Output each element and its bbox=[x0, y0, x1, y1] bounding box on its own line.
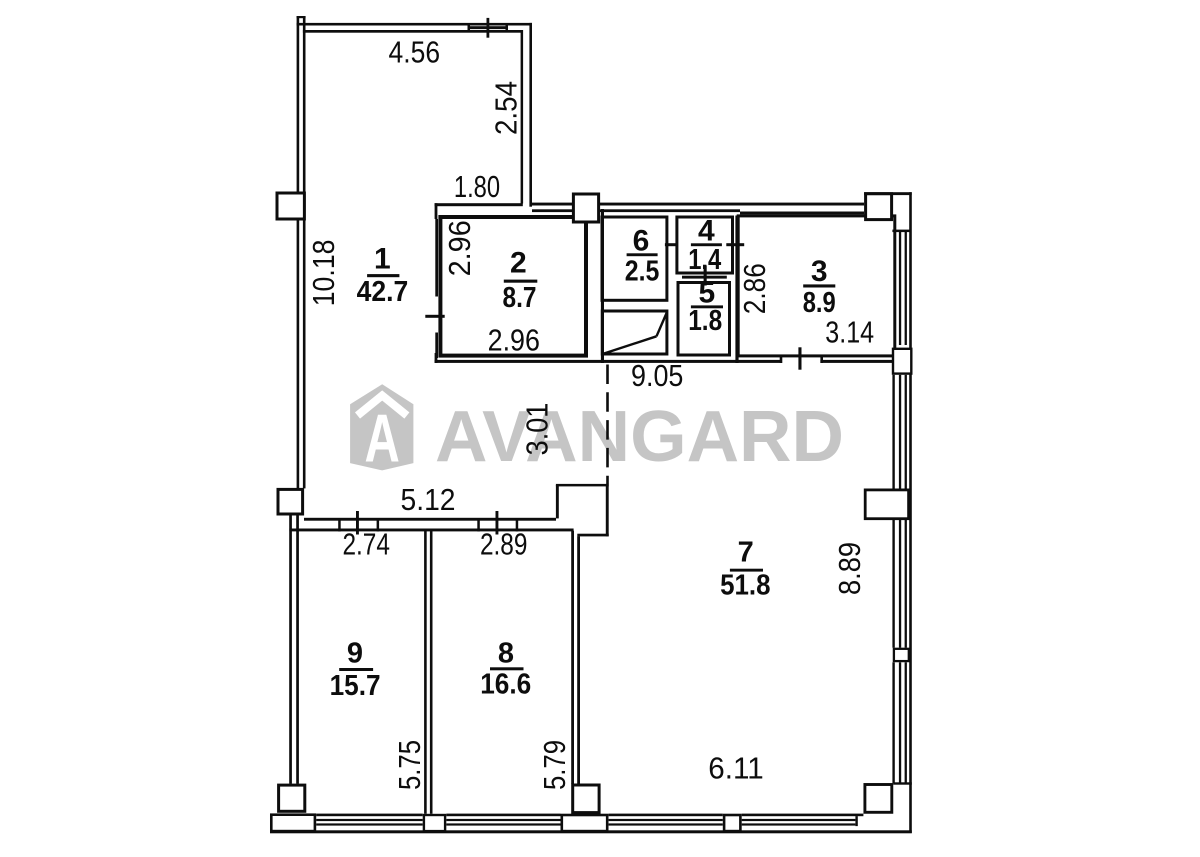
svg-text:7: 7 bbox=[738, 537, 754, 569]
svg-text:51.8: 51.8 bbox=[720, 570, 770, 602]
svg-text:AVANGARD: AVANGARD bbox=[435, 397, 844, 477]
svg-text:8.7: 8.7 bbox=[503, 282, 537, 314]
svg-text:8: 8 bbox=[498, 638, 514, 670]
svg-text:5.79: 5.79 bbox=[537, 740, 572, 790]
svg-text:15.7: 15.7 bbox=[330, 670, 381, 702]
svg-text:42.7: 42.7 bbox=[357, 276, 409, 308]
svg-text:6: 6 bbox=[633, 225, 650, 258]
svg-text:2.96: 2.96 bbox=[442, 220, 477, 276]
svg-text:A: A bbox=[365, 399, 400, 476]
svg-text:5.75: 5.75 bbox=[392, 740, 427, 790]
svg-text:2.86: 2.86 bbox=[737, 263, 772, 314]
svg-text:1.80: 1.80 bbox=[454, 169, 500, 204]
svg-text:4: 4 bbox=[698, 214, 715, 247]
svg-text:10.18: 10.18 bbox=[306, 240, 341, 307]
svg-text:1.4: 1.4 bbox=[688, 244, 721, 276]
svg-text:2.5: 2.5 bbox=[625, 255, 660, 287]
svg-text:8.9: 8.9 bbox=[803, 287, 836, 319]
svg-text:1.8: 1.8 bbox=[688, 305, 722, 337]
svg-text:2: 2 bbox=[510, 247, 527, 280]
svg-text:3.01: 3.01 bbox=[520, 403, 555, 456]
svg-text:8.89: 8.89 bbox=[832, 542, 867, 595]
svg-text:2.89: 2.89 bbox=[480, 526, 528, 561]
svg-text:9: 9 bbox=[347, 637, 363, 669]
svg-text:9.05: 9.05 bbox=[631, 358, 683, 393]
svg-text:1: 1 bbox=[374, 242, 391, 275]
svg-text:16.6: 16.6 bbox=[480, 669, 531, 701]
svg-text:3.14: 3.14 bbox=[825, 315, 874, 350]
svg-text:2.74: 2.74 bbox=[342, 526, 390, 561]
svg-text:3: 3 bbox=[811, 255, 828, 288]
svg-text:5.12: 5.12 bbox=[401, 482, 456, 517]
svg-text:2.96: 2.96 bbox=[488, 323, 540, 358]
svg-text:6.11: 6.11 bbox=[708, 751, 763, 786]
svg-text:2.54: 2.54 bbox=[489, 81, 524, 135]
svg-text:4.56: 4.56 bbox=[389, 35, 441, 70]
